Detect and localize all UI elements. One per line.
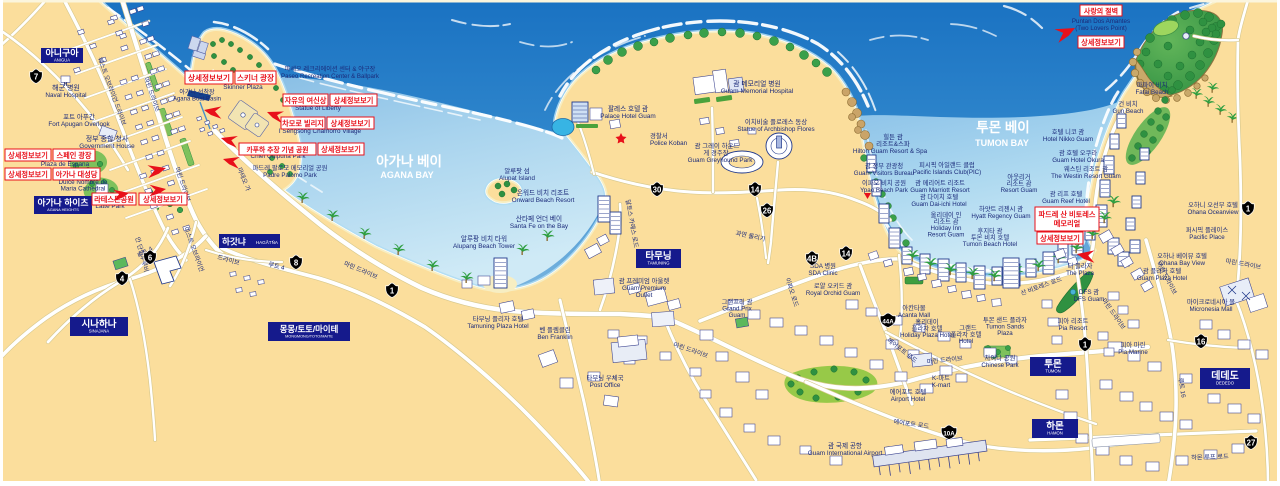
svg-text:TAMUNING: TAMUNING <box>647 260 669 265</box>
svg-text:괌 메모리얼 병원: 괌 메모리얼 병원 <box>733 79 781 88</box>
svg-text:자유의 여신상: 자유의 여신상 <box>285 96 327 105</box>
svg-text:Ben Franklin: Ben Franklin <box>537 334 573 341</box>
svg-text:(Two Lovers Point): (Two Lovers Point) <box>1075 25 1127 32</box>
svg-text:괌 메리어트 리조트: 괌 메리어트 리조트 <box>915 178 965 187</box>
svg-text:Santa Fe on the Bay: Santa Fe on the Bay <box>510 223 569 230</box>
svg-text:8: 8 <box>294 259 299 268</box>
svg-text:Guam: Guam <box>729 312 746 319</box>
svg-text:Paseo Recreation Center & Ball: Paseo Recreation Center & Ballpark <box>281 73 380 80</box>
svg-text:타무닝 플리자 호텔: 타무닝 플리자 호텔 <box>473 314 524 323</box>
svg-text:하얏트 리젠시 괌: 하얏트 리젠시 괌 <box>979 204 1023 213</box>
svg-text:몽몽/토토/마이테: 몽몽/토토/마이테 <box>280 324 339 334</box>
svg-text:44A: 44A <box>882 319 894 326</box>
svg-text:DFS 괌: DFS 괌 <box>1079 288 1099 296</box>
svg-text:해군 병원: 해군 병원 <box>52 83 80 92</box>
svg-text:벤 플렘클린: 벤 플렘클린 <box>539 325 570 334</box>
svg-text:상세정보보기: 상세정보보기 <box>8 151 48 160</box>
svg-text:Tamuning Plaza Hotel: Tamuning Plaza Hotel <box>467 323 528 330</box>
svg-text:온워드 비치 리조트: 온워드 비치 리조트 <box>517 188 569 197</box>
svg-text:타무닝 우체국: 타무닝 우체국 <box>586 373 623 382</box>
svg-text:Guam Premium: Guam Premium <box>622 285 666 292</box>
svg-text:상세정보보기: 상세정보보기 <box>321 145 361 154</box>
svg-text:30: 30 <box>653 186 662 195</box>
svg-text:괌 그레이 하운드: 괌 그레이 하운드 <box>695 141 740 150</box>
svg-text:퍼시픽 플레이스: 퍼시픽 플레이스 <box>1186 225 1229 234</box>
svg-text:Alupang Beach Tower: Alupang Beach Tower <box>453 243 516 250</box>
svg-text:1: 1 <box>1083 341 1088 350</box>
svg-text:파세오 레크리에이션 센터 & 야구장: 파세오 레크리에이션 센터 & 야구장 <box>285 65 376 73</box>
svg-text:상세정보보기: 상세정보보기 <box>1081 38 1121 47</box>
svg-text:AGANA HEIGHTS: AGANA HEIGHTS <box>47 207 79 212</box>
svg-text:Guam Greyhound Park: Guam Greyhound Park <box>688 157 754 164</box>
svg-text:아가나 하이츠: 아가나 하이츠 <box>37 196 88 207</box>
svg-text:Hilton Guam Resort & Spa: Hilton Guam Resort & Spa <box>853 148 928 155</box>
svg-text:DEDEDO: DEDEDO <box>1216 380 1235 385</box>
svg-text:괌 호텔 오쿠라: 괌 호텔 오쿠라 <box>1059 148 1097 157</box>
svg-text:1: 1 <box>390 287 395 296</box>
svg-text:메모리얼: 메모리얼 <box>1054 219 1081 228</box>
svg-text:이치비술 플로레스 동상: 이치비술 플로레스 동상 <box>745 117 807 126</box>
svg-text:오하니 오선부 호텔: 오하니 오선부 호텔 <box>1188 200 1238 209</box>
svg-text:Naval Hospital: Naval Hospital <box>45 92 86 99</box>
svg-text:AGANA BAY: AGANA BAY <box>380 170 433 180</box>
svg-text:차이나 공원: 차이나 공원 <box>985 353 1016 362</box>
svg-text:힐튼 괌: 힐튼 괌 <box>883 132 903 141</box>
svg-text:디 플라자: 디 플라자 <box>1068 261 1093 270</box>
svg-text:상세정보보기: 상세정보보기 <box>8 170 48 179</box>
svg-text:카푸하 추장 기념 공원: 카푸하 추장 기념 공원 <box>247 145 309 154</box>
svg-text:Ohana Oceanview: Ohana Oceanview <box>1188 209 1239 216</box>
svg-text:Guam International Airport: Guam International Airport <box>808 450 883 457</box>
svg-text:Hotel Nikko Guam: Hotel Nikko Guam <box>1043 136 1093 143</box>
svg-text:1: 1 <box>1246 205 1251 214</box>
svg-text:Onward Beach Resort: Onward Beach Resort <box>512 197 575 204</box>
svg-text:Plaza de Espana: Plaza de Espana <box>41 161 90 168</box>
svg-text:호텔 니코 괌: 호텔 니코 괌 <box>1052 127 1085 136</box>
svg-text:파드레 팔로모 메모리얼 공원: 파드레 팔로모 메모리얼 공원 <box>253 163 328 172</box>
svg-text:Police Koban: Police Koban <box>650 140 688 147</box>
svg-text:아가나 선착장: 아가나 선착장 <box>179 88 215 96</box>
svg-text:로얄 오키드 괌: 로얄 오키드 괌 <box>814 281 852 290</box>
svg-text:하몬 루프 로드: 하몬 루프 로드 <box>1191 452 1229 461</box>
svg-text:상세정보보기: 상세정보보기 <box>188 72 230 82</box>
svg-text:이파오 비치 공원: 이파오 비치 공원 <box>862 178 906 187</box>
svg-text:파파이 비치: 파파이 비치 <box>1137 80 1168 89</box>
svg-text:Plaza: Plaza <box>997 330 1013 337</box>
svg-text:26: 26 <box>763 207 772 216</box>
svg-text:괌 리프 호텔: 괌 리프 호텔 <box>1050 189 1083 198</box>
svg-text:오하나 베이뷰 호텔: 오하나 베이뷰 호텔 <box>1157 251 1207 260</box>
svg-text:Pacific Islands Club(PIC): Pacific Islands Club(PIC) <box>913 169 981 176</box>
svg-text:아가나 베이: 아가나 베이 <box>376 153 442 169</box>
svg-text:Hotel: Hotel <box>959 338 973 345</box>
svg-text:Hyatt Regency Guam: Hyatt Regency Guam <box>971 213 1030 220</box>
svg-text:4B: 4B <box>807 255 817 264</box>
svg-text:Guam Memorial Hospital: Guam Memorial Hospital <box>721 88 794 95</box>
svg-text:팔레스 호텔 괌: 팔레스 호텔 괌 <box>608 104 648 113</box>
svg-text:TUMON: TUMON <box>1045 368 1060 373</box>
svg-text:아칸타몰: 아칸타몰 <box>902 303 925 312</box>
svg-text:Skinner Plaza: Skinner Plaza <box>223 84 263 91</box>
svg-text:Guam Dai-ichi Hotel: Guam Dai-ichi Hotel <box>911 201 966 208</box>
svg-text:Outlet: Outlet <box>636 292 653 299</box>
svg-text:Resort Guam: Resort Guam <box>928 232 965 239</box>
svg-text:Royal Orchid Guam: Royal Orchid Guam <box>806 290 860 297</box>
svg-text:차모로 빌리지: 차모로 빌리지 <box>282 119 324 128</box>
svg-text:Gun Beach: Gun Beach <box>1113 108 1145 115</box>
svg-text:Micronesia Mall: Micronesia Mall <box>1190 306 1233 313</box>
svg-text:The Westin Resort Guam: The Westin Resort Guam <box>1051 173 1121 180</box>
svg-text:Statue of Archbishop Flores: Statue of Archbishop Flores <box>737 126 814 133</box>
svg-text:Tumon Beach Hotel: Tumon Beach Hotel <box>963 241 1017 248</box>
svg-text:웨스틴 리조트 괌: 웨스틴 리조트 괌 <box>1064 164 1108 173</box>
svg-text:Post Office: Post Office <box>590 382 621 389</box>
svg-text:피시픽 아일랜드 클럽: 피시픽 아일랜드 클럽 <box>919 160 975 169</box>
svg-text:Airport Hotel: Airport Hotel <box>891 396 925 403</box>
svg-text:알루팡 비치 타워: 알루팡 비치 타워 <box>461 234 507 243</box>
svg-text:알루팟 섬: 알루팟 섬 <box>504 166 529 175</box>
svg-text:정부 종합 청사: 정부 종합 청사 <box>86 134 129 143</box>
svg-text:상세정보보기: 상세정보보기 <box>331 119 371 128</box>
svg-text:Holiday Plaza Hotel: Holiday Plaza Hotel <box>900 332 954 339</box>
svg-text:Padre Palomo Park: Padre Palomo Park <box>263 172 318 179</box>
svg-text:Resort Guam: Resort Guam <box>1001 187 1038 194</box>
svg-text:6: 6 <box>148 254 153 263</box>
svg-text:Puntan Dos Amantes: Puntan Dos Amantes <box>1072 18 1130 25</box>
svg-text:상세정보보기: 상세정보보기 <box>1040 234 1080 243</box>
svg-text:Guam Reef Hotel: Guam Reef Hotel <box>1042 198 1090 205</box>
svg-text:14: 14 <box>842 250 851 259</box>
svg-text:괌 다이치 호텔: 괌 다이치 호텔 <box>920 192 958 201</box>
svg-text:투몬 베이: 투몬 베이 <box>976 119 1029 135</box>
svg-text:경찰서: 경찰서 <box>650 131 668 140</box>
svg-text:10A: 10A <box>943 431 955 438</box>
svg-text:Pia Resort: Pia Resort <box>1059 325 1088 332</box>
svg-text:Pacific Place: Pacific Place <box>1189 234 1225 241</box>
svg-text:27: 27 <box>1247 439 1256 448</box>
svg-text:피아 마린: 피아 마린 <box>1121 340 1146 349</box>
svg-text:에어포트 호텔: 에어포트 호텔 <box>890 387 927 396</box>
svg-text:TUMON BAY: TUMON BAY <box>975 138 1029 148</box>
svg-text:Palace Hotel Guam: Palace Hotel Guam <box>600 113 655 120</box>
svg-text:상세정보보기: 상세정보보기 <box>143 195 183 204</box>
svg-text:괌 프레미엄 아울렛: 괌 프레미엄 아울렛 <box>619 276 670 285</box>
svg-text:Maria Cathedral: Maria Cathedral <box>61 185 106 192</box>
svg-text:16: 16 <box>1197 338 1206 347</box>
svg-text:스키너 광장: 스키너 광장 <box>237 72 274 82</box>
svg-text:상세정보보기: 상세정보보기 <box>334 96 374 105</box>
svg-text:Chinese Park: Chinese Park <box>981 362 1019 369</box>
svg-text:하갓냐: 하갓냐 <box>222 236 246 247</box>
svg-text:14: 14 <box>751 186 760 195</box>
svg-text:파드레 산 비토레스: 파드레 산 비토레스 <box>1039 210 1096 219</box>
svg-text:Guam Visitors Bureau: Guam Visitors Bureau <box>854 170 915 177</box>
svg-text:SDA Clinic: SDA Clinic <box>808 270 837 277</box>
svg-text:Fort Apugan Overlook: Fort Apugan Overlook <box>48 121 110 128</box>
svg-text:Pia Marine: Pia Marine <box>1118 349 1148 356</box>
svg-text:Agana Boat Basin: Agana Boat Basin <box>173 97 221 103</box>
svg-text:K-mart: K-mart <box>932 382 951 389</box>
svg-text:HAGÅTÑA: HAGÅTÑA <box>256 239 279 245</box>
svg-text:괌 국제 공항: 괌 국제 공항 <box>828 441 862 450</box>
svg-text:7: 7 <box>34 73 38 82</box>
svg-text:아가나 대성당: 아가나 대성당 <box>56 170 98 179</box>
svg-text:MONGMONG/TOTO/MAITE: MONGMONG/TOTO/MAITE <box>285 334 333 338</box>
svg-text:마이크로네시아 몰: 마이크로네시아 몰 <box>1187 297 1235 306</box>
svg-text:아니구아: 아니구아 <box>45 47 79 58</box>
svg-text:ANIGUA: ANIGUA <box>54 57 70 62</box>
svg-text:리조트&스파: 리조트&스파 <box>876 139 910 148</box>
svg-text:The Plaza: The Plaza <box>1066 270 1094 277</box>
svg-text:포트 아푸간: 포트 아푸간 <box>63 112 95 121</box>
svg-text:SINAJANA: SINAJANA <box>89 328 110 333</box>
svg-text:괌 정부 관광청: 괌 정부 관광청 <box>865 161 903 170</box>
svg-text:라테스돈공원: 라테스돈공원 <box>94 195 134 204</box>
svg-text:DFS Guam: DFS Guam <box>1074 296 1105 303</box>
svg-text:K-마트: K-마트 <box>932 373 950 382</box>
svg-text:Fafai Beach: Fafai Beach <box>1135 89 1169 96</box>
svg-text:게 경주장: 게 경주장 <box>703 148 728 157</box>
svg-text:사랑의 절벽: 사랑의 절벽 <box>1084 6 1118 15</box>
svg-text:산타페 언더 베이: 산타페 언더 베이 <box>516 214 562 223</box>
svg-text:Guam Hotel Okura: Guam Hotel Okura <box>1052 157 1104 164</box>
svg-text:건 비치: 건 비치 <box>1118 99 1137 108</box>
svg-text:HAMON: HAMON <box>1047 430 1063 435</box>
svg-text:스페인 광장: 스페인 광장 <box>56 151 91 160</box>
svg-text:Alupat Island: Alupat Island <box>499 175 535 182</box>
svg-text:4: 4 <box>120 275 125 284</box>
svg-text:Ohana Bay View: Ohana Bay View <box>1159 260 1206 267</box>
svg-text:피아 리조트: 피아 리조트 <box>1058 316 1089 325</box>
